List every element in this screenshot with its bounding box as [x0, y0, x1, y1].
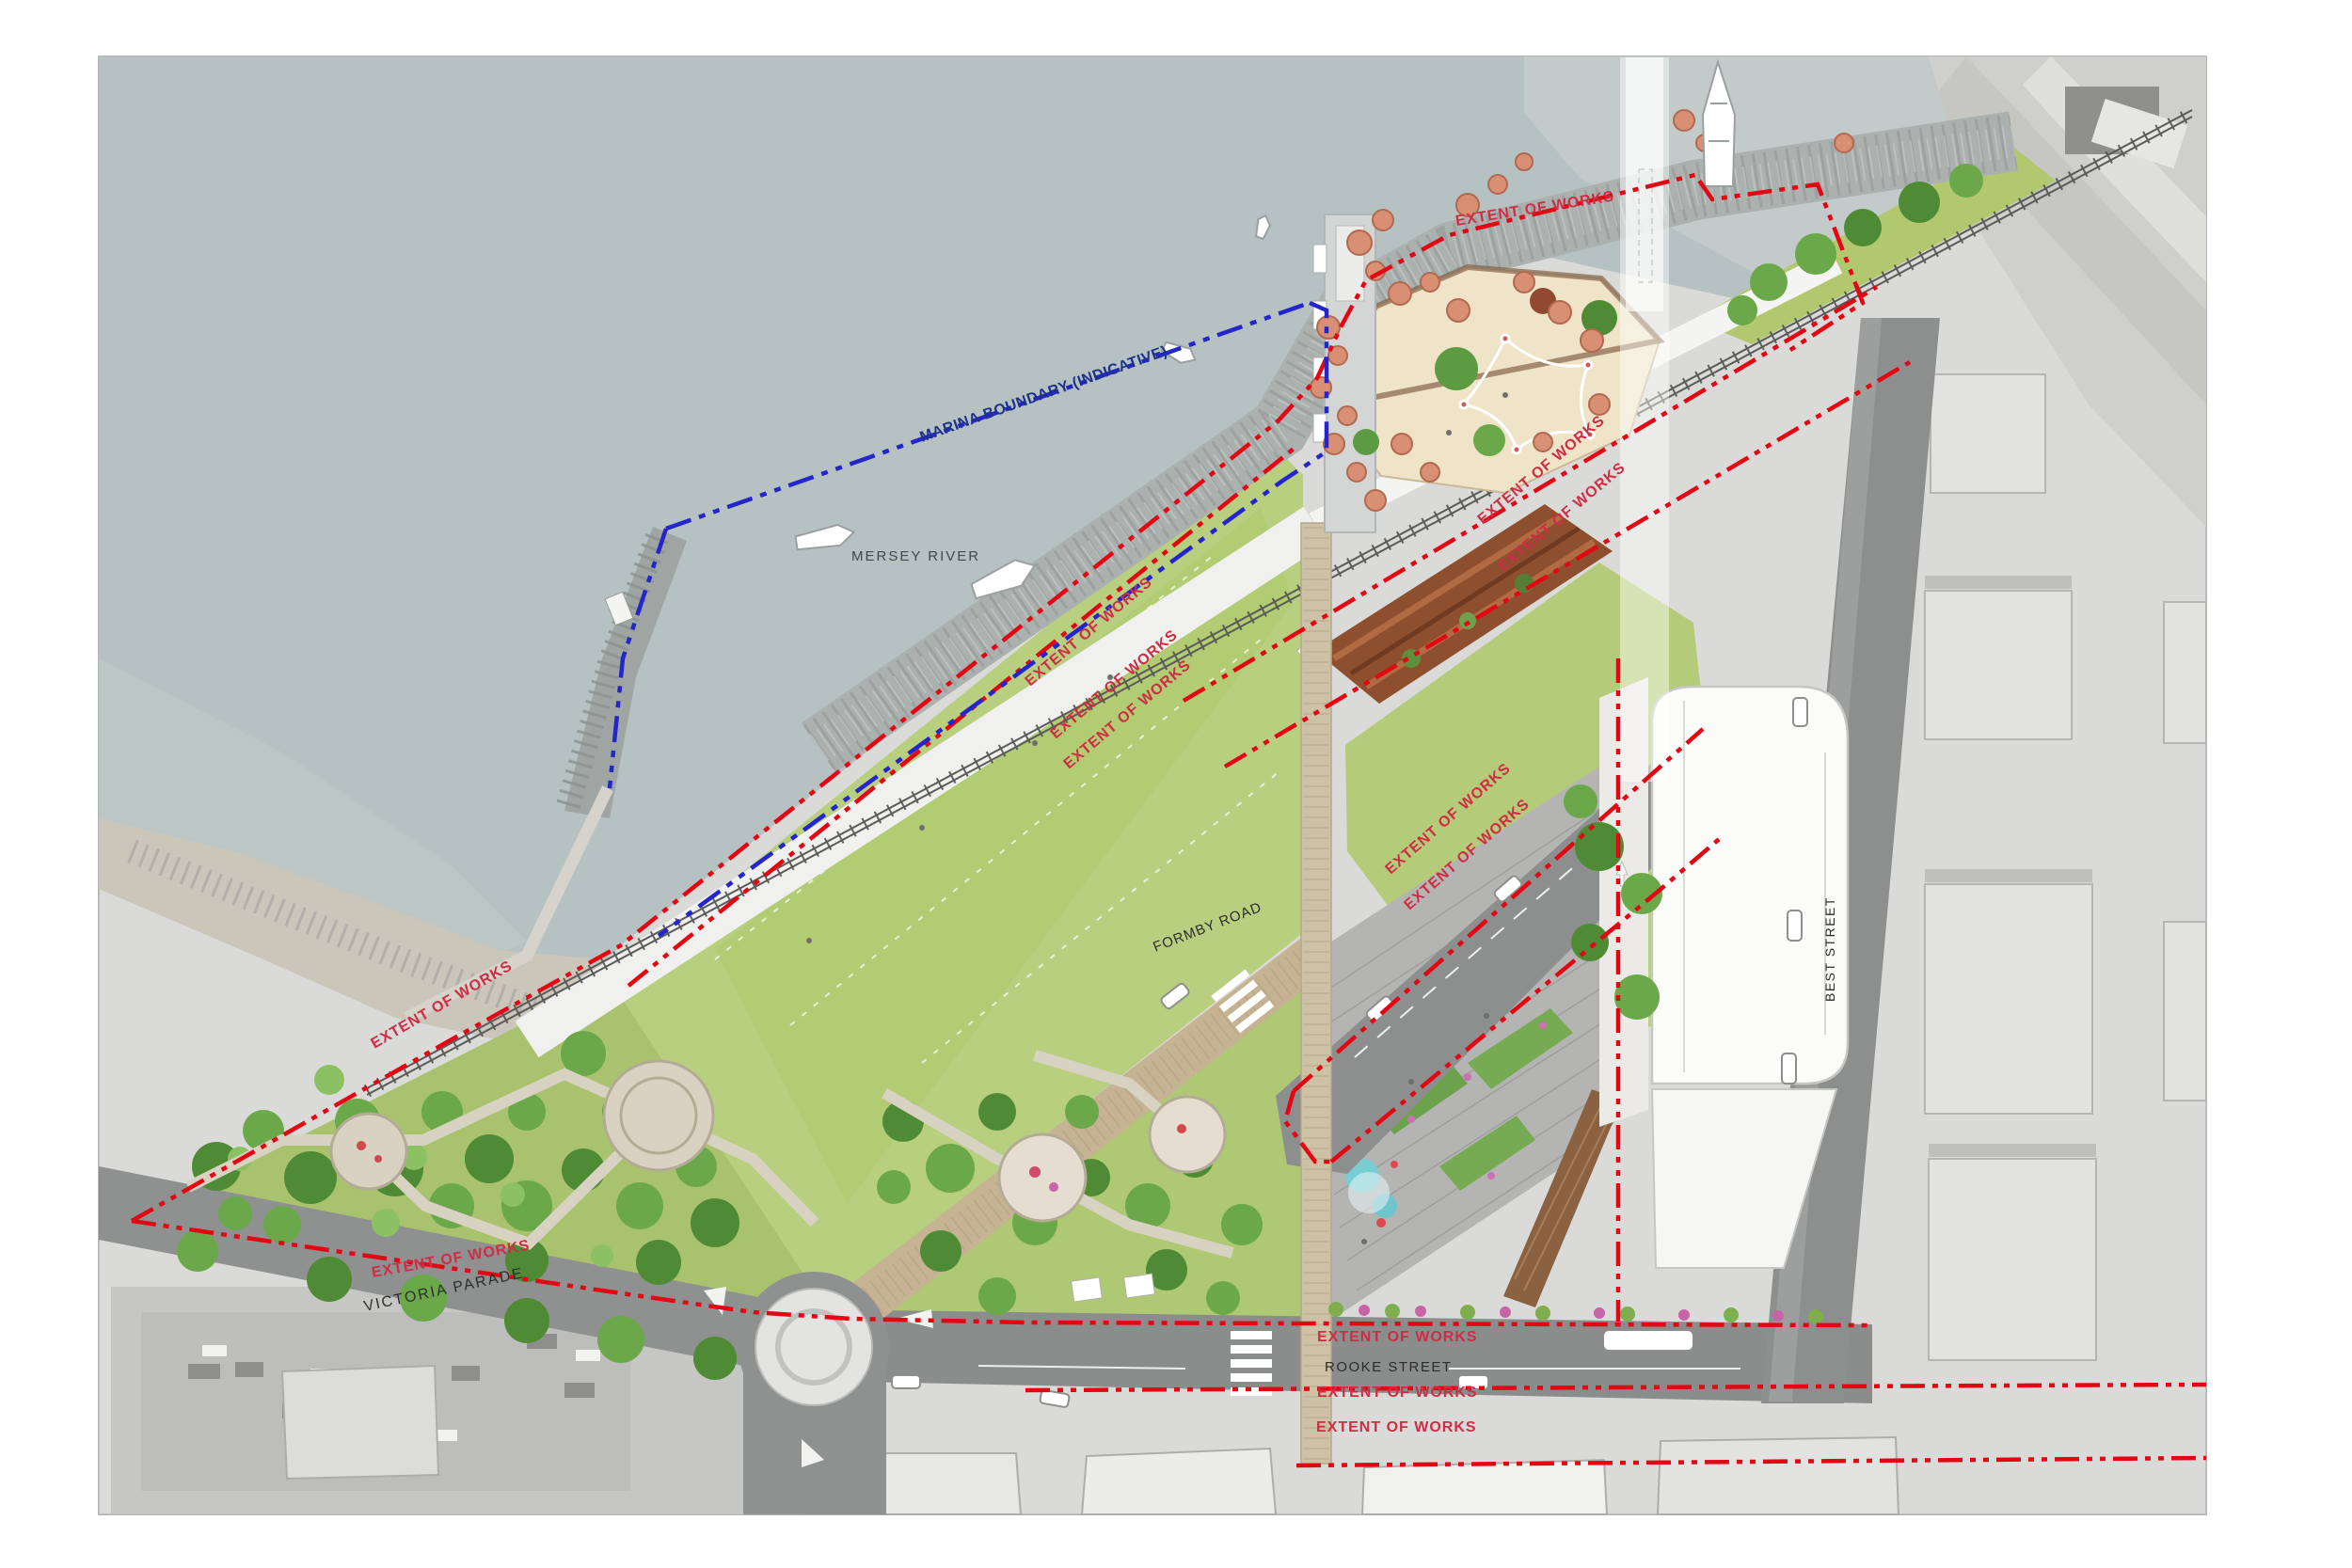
playground-circle-1 — [999, 1134, 1086, 1221]
playground-circle-2 — [1150, 1097, 1225, 1172]
masterplan-page: MARINA BOUNDARY (INDICATIVE) MERSEY RIVE… — [0, 0, 2352, 1568]
svg-text:EXTENT OF WORKS: EXTENT OF WORKS — [1316, 1419, 1477, 1435]
label-rooke-street: ROOKE STREET — [1325, 1359, 1453, 1375]
bus — [1603, 1330, 1693, 1351]
circular-plaza-large — [604, 1061, 713, 1170]
masterplan-drawing: MARINA BOUNDARY (INDICATIVE) MERSEY RIVE… — [0, 0, 2352, 1568]
circular-plaza-small — [331, 1114, 406, 1189]
overlay-band — [1620, 57, 1669, 782]
label-mersey-river: MERSEY RIVER — [851, 548, 980, 564]
svg-text:EXTENT OF WORKS: EXTENT OF WORKS — [1317, 1385, 1478, 1401]
label-best-street: BEST STREET — [1822, 896, 1837, 1002]
svg-text:EXTENT OF WORKS: EXTENT OF WORKS — [1317, 1329, 1478, 1345]
